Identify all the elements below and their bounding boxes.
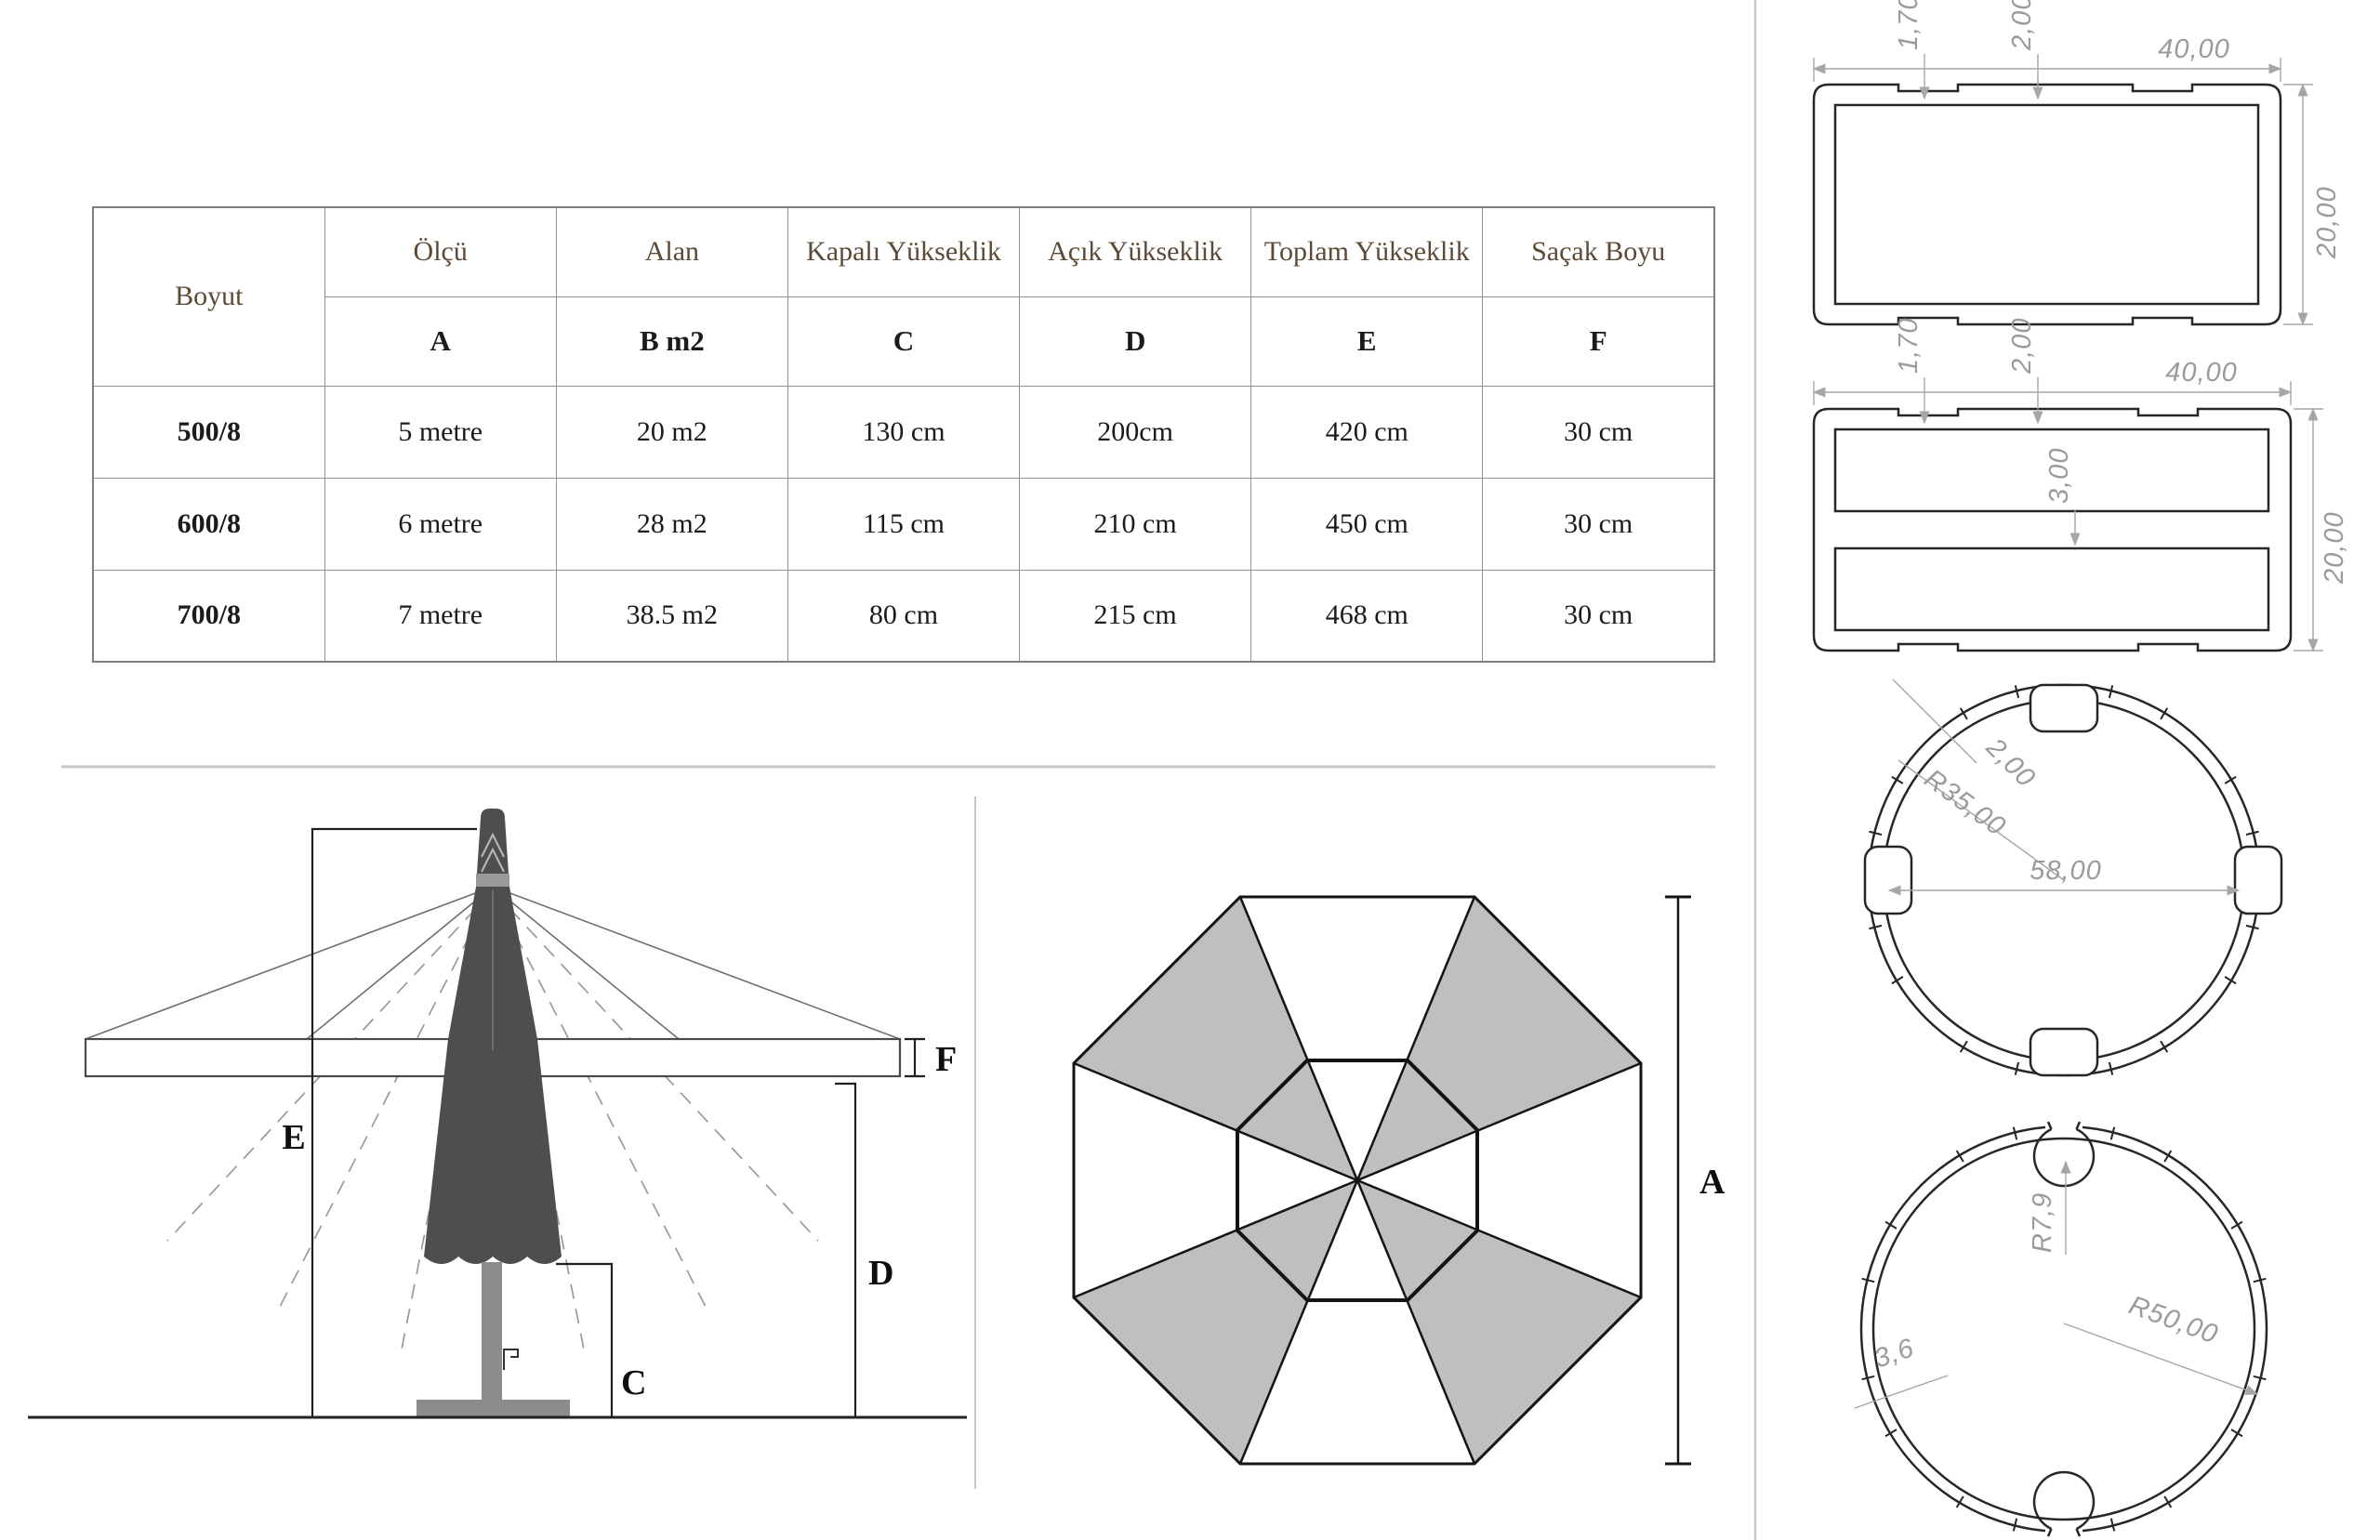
umbrella-side-view: E F D C [28,809,967,1417]
dim-rect2-lip: 1,70 [1894,318,1924,374]
dim-a-line [1665,897,1691,1464]
base-plate [416,1400,570,1417]
label-e: E [282,1118,305,1157]
dim-rect1-lip: 1,70 [1894,0,1924,50]
label-a: A [1699,1163,1725,1202]
dim-f-bracket [905,1039,925,1076]
pole-crank-mark [504,1349,518,1370]
profile-ring-r35: 2,00 R35,00 58,00 [1865,679,2281,1075]
hub-collar [476,874,509,887]
profile-pole-tube-r50: R7,9 R50,00 3,6 [1855,1120,2267,1538]
tube2-outer-wall [1814,409,2291,651]
dim-rect2-width: 40,00 [2165,358,2238,388]
pole [482,1262,502,1400]
umbrella-top-view: A [1074,897,1725,1464]
dim-rect1-groove: 2,00 [2007,0,2037,51]
spec-sheet-page: Boyut Ölçü Alan Kapalı Yükseklik Açık Yü… [0,0,2380,1540]
dim-d-line [835,1084,855,1417]
dim-rect1-width: 40,00 [2158,34,2230,64]
profile-rect-tube-2: 40,00 1,70 2,00 3,00 20,00 [1814,318,2349,651]
dim-rect2-height: 20,00 [2320,511,2349,585]
dim-c-bracket [556,1264,612,1417]
closed-umbrella [416,809,570,1417]
label-d: D [868,1254,893,1293]
dim-rect1-height: 20,00 [2312,186,2342,259]
dim-rect2-groove: 2,00 [2007,318,2037,375]
technical-drawings: E F D C [0,0,2380,1540]
dim-ring-diameter: 58,00 [2030,856,2102,886]
finial [477,809,509,874]
profile-rect-tube-1: 40,00 1,70 2,00 20,00 [1814,0,2342,324]
dim-rect2-web: 3,00 [2044,448,2074,504]
label-c: C [621,1363,646,1402]
tube1-outer-wall [1814,85,2281,324]
dim-pole-channel-radius: R7,9 [2028,1192,2057,1253]
label-f: F [935,1040,957,1079]
